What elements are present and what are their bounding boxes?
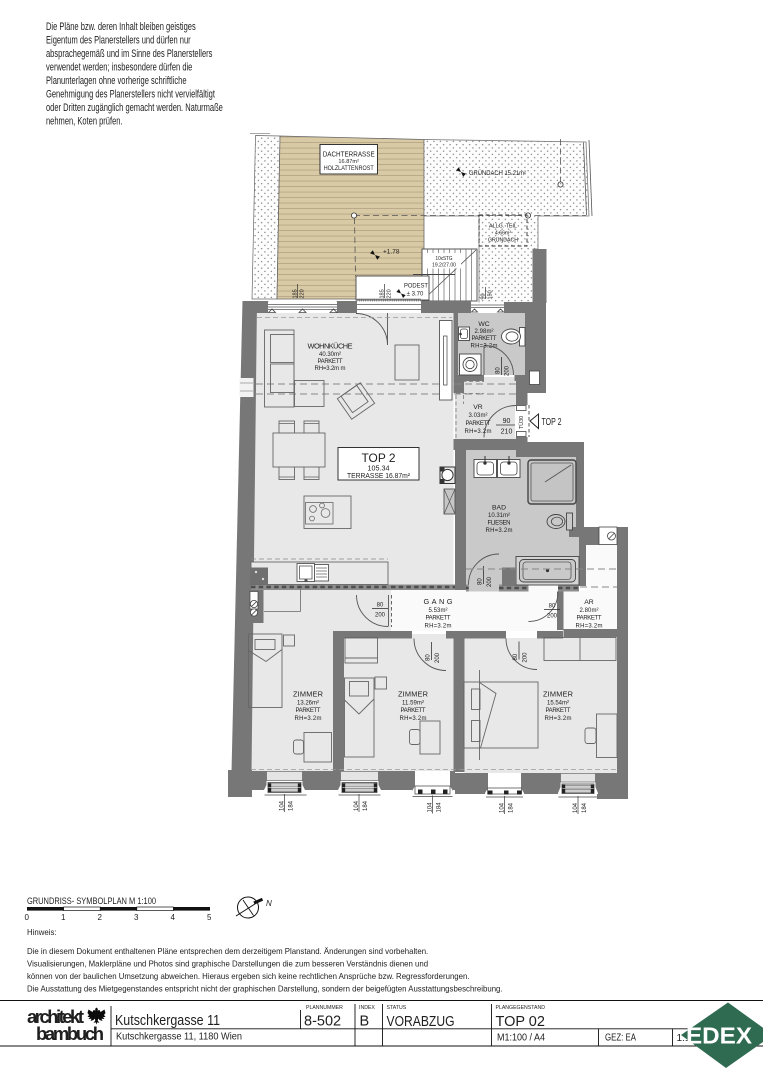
svg-text:15.54m²: 15.54m² bbox=[547, 701, 569, 707]
svg-text:1: 1 bbox=[61, 913, 66, 922]
svg-text:11.59m²: 11.59m² bbox=[402, 701, 424, 707]
svg-text:TOP 02: TOP 02 bbox=[496, 1014, 545, 1030]
svg-text:RH=3.2m: RH=3.2m bbox=[576, 624, 603, 630]
svg-text:AR: AR bbox=[584, 599, 594, 606]
svg-text:+1.78: +1.78 bbox=[383, 249, 400, 256]
svg-text:GRÜNDACH: GRÜNDACH bbox=[488, 237, 518, 244]
svg-text:absprachegemäß und im Sinne de: absprachegemäß und im Sinne des Planerst… bbox=[46, 48, 213, 60]
svg-text:Planunterlagen ohne vorherige: Planunterlagen ohne vorherige schriftlic… bbox=[46, 75, 186, 87]
svg-text:nehmen, Koten prüfen.: nehmen, Koten prüfen. bbox=[46, 115, 123, 127]
svg-text:TOP 2: TOP 2 bbox=[362, 453, 396, 465]
svg-text:40.30m²: 40.30m² bbox=[319, 352, 341, 358]
svg-text:verwendet werden; insbesondere: verwendet werden; insbesondere dürfen di… bbox=[46, 61, 192, 73]
svg-text:bambuch: bambuch bbox=[36, 1023, 104, 1044]
svg-text:RH=3.2m: RH=3.2m bbox=[425, 624, 452, 630]
svg-text:RH=3.2m: RH=3.2m bbox=[471, 344, 498, 350]
svg-text:80: 80 bbox=[426, 654, 432, 661]
svg-text:WC: WC bbox=[478, 321, 489, 328]
svg-text:Visualisierungen, Maklerpläne: Visualisierungen, Maklerpläne und Photos… bbox=[27, 959, 428, 968]
svg-text:STATUS: STATUS bbox=[387, 1005, 407, 1011]
svg-text:EDEX: EDEX bbox=[686, 1023, 753, 1049]
svg-text:Hinweis:: Hinweis: bbox=[27, 928, 57, 937]
svg-text:Die Pläne bzw. deren Inhalt bl: Die Pläne bzw. deren Inhalt bleiben geis… bbox=[46, 21, 196, 33]
svg-text:19.2/27.00: 19.2/27.00 bbox=[432, 263, 456, 269]
svg-text:RH=3.2m: RH=3.2m bbox=[545, 716, 572, 722]
svg-text:M1:100 / A4: M1:100 / A4 bbox=[497, 1033, 545, 1044]
svg-text:10.31m²: 10.31m² bbox=[488, 513, 510, 519]
svg-text:Die in diesem Dokument enthalt: Die in diesem Dokument enthaltenen Pläne… bbox=[27, 946, 428, 957]
svg-text:13.26m²: 13.26m² bbox=[297, 701, 319, 707]
svg-text:PLANNUMMER: PLANNUMMER bbox=[306, 1005, 343, 1011]
svg-text:184: 184 bbox=[509, 802, 515, 813]
svg-text:GANG: GANG bbox=[424, 597, 453, 606]
svg-text:PARKETT: PARKETT bbox=[426, 616, 451, 622]
svg-text:210: 210 bbox=[501, 429, 513, 436]
svg-text:184: 184 bbox=[582, 802, 588, 813]
svg-text:80: 80 bbox=[549, 604, 556, 610]
svg-text:220: 220 bbox=[387, 289, 393, 298]
svg-text:105.34: 105.34 bbox=[368, 466, 390, 473]
svg-text:90: 90 bbox=[503, 418, 511, 425]
svg-text:RH=3.2m: RH=3.2m bbox=[465, 429, 492, 435]
svg-text:Genehmigung des Planerstellers: Genehmigung des Planerstellers nicht ver… bbox=[46, 88, 215, 100]
svg-text:INDEX: INDEX bbox=[359, 1005, 375, 1011]
svg-text:ZIMMER: ZIMMER bbox=[398, 690, 428, 699]
svg-text:200: 200 bbox=[547, 614, 558, 620]
svg-text:PARKETT: PARKETT bbox=[577, 616, 602, 622]
svg-text:200: 200 bbox=[435, 652, 441, 663]
svg-text:FLIESEN: FLIESEN bbox=[488, 521, 511, 527]
svg-text:4: 4 bbox=[171, 913, 176, 922]
svg-text:80: 80 bbox=[478, 578, 484, 585]
svg-text:TERRASSE 16.87m²: TERRASSE 16.87m² bbox=[347, 473, 411, 480]
svg-text:N: N bbox=[266, 899, 272, 908]
svg-text:ALLG. TEIL: ALLG. TEIL bbox=[489, 224, 518, 230]
svg-text:PODEST: PODEST bbox=[404, 283, 428, 290]
svg-text:184: 184 bbox=[437, 802, 443, 813]
svg-text:TÜ30: TÜ30 bbox=[518, 416, 525, 429]
svg-text:PLANGEGENSTAND: PLANGEGENSTAND bbox=[496, 1005, 546, 1011]
svg-text:RH=3.2m: RH=3.2m bbox=[400, 716, 427, 722]
svg-text:BAD: BAD bbox=[492, 505, 506, 512]
svg-text:200: 200 bbox=[505, 365, 511, 376]
svg-text:Kutschkergasse 11: Kutschkergasse 11 bbox=[115, 1012, 220, 1029]
svg-text:PARKETT: PARKETT bbox=[401, 708, 426, 714]
svg-text:PARKETT: PARKETT bbox=[296, 708, 321, 714]
svg-text:RH=3.2m: RH=3.2m bbox=[295, 716, 322, 722]
svg-text:16.87m²: 16.87m² bbox=[338, 159, 359, 165]
svg-text:200: 200 bbox=[487, 576, 493, 587]
svg-text:3.03m²: 3.03m² bbox=[469, 413, 488, 419]
svg-text:200: 200 bbox=[375, 613, 386, 619]
svg-text:± 3.70: ± 3.70 bbox=[407, 292, 424, 298]
svg-text:oder Dritten zugänglich gemach: oder Dritten zugänglich gemacht werden. … bbox=[46, 102, 223, 114]
svg-text:PARKETT: PARKETT bbox=[546, 708, 571, 714]
svg-text:5: 5 bbox=[207, 913, 212, 922]
svg-text:80: 80 bbox=[513, 653, 519, 660]
svg-text:ZIMMER: ZIMMER bbox=[543, 690, 573, 699]
svg-text:ZIMMER: ZIMMER bbox=[293, 690, 323, 699]
svg-text:2: 2 bbox=[98, 913, 103, 922]
svg-text:PARKETT: PARKETT bbox=[466, 421, 491, 427]
svg-text:220: 220 bbox=[300, 289, 306, 298]
svg-text:VR: VR bbox=[473, 404, 483, 411]
svg-text:WOHNKÜCHE: WOHNKÜCHE bbox=[308, 342, 353, 351]
svg-text:5.53m²: 5.53m² bbox=[429, 608, 448, 614]
svg-text:HOLZLATTENROST: HOLZLATTENROST bbox=[324, 166, 374, 172]
svg-text:2.80m²: 2.80m² bbox=[580, 608, 599, 614]
svg-text:8-502: 8-502 bbox=[304, 1014, 341, 1030]
svg-text:GEZ: EA: GEZ: EA bbox=[605, 1033, 636, 1044]
svg-text:GRUNDRISS- SYMBOLPLAN M 1:100: GRUNDRISS- SYMBOLPLAN M 1:100 bbox=[27, 896, 156, 906]
svg-text:PARKETT: PARKETT bbox=[472, 336, 497, 342]
svg-text:184: 184 bbox=[289, 800, 295, 811]
svg-text:184: 184 bbox=[363, 800, 369, 811]
svg-text:PARKETT: PARKETT bbox=[318, 359, 343, 365]
svg-text:TOP 2: TOP 2 bbox=[542, 417, 562, 428]
svg-text:200: 200 bbox=[523, 652, 529, 663]
svg-text:2.98m²: 2.98m² bbox=[475, 329, 494, 335]
svg-text:können von der baulichen Umset: können von der baulichen Umsetzung abwei… bbox=[27, 972, 470, 981]
svg-text:Eigentum des Planerstellers un: Eigentum des Planerstellers und dürfen n… bbox=[46, 34, 191, 46]
svg-text:B: B bbox=[360, 1014, 370, 1030]
svg-text:Kutschkergasse 11, 1180 Wien: Kutschkergasse 11, 1180 Wien bbox=[116, 1032, 242, 1043]
svg-text:RH=3.2m m: RH=3.2m m bbox=[315, 366, 346, 372]
svg-text:Die Ausstattung des Mietgegens: Die Ausstattung des Mietgegenstandes ent… bbox=[27, 984, 503, 993]
svg-text:GRÜNDACH 15.21m²: GRÜNDACH 15.21m² bbox=[469, 169, 526, 177]
svg-text:VORABZUG: VORABZUG bbox=[387, 1014, 455, 1030]
svg-text:0: 0 bbox=[25, 913, 30, 922]
svg-text:80: 80 bbox=[496, 367, 502, 374]
svg-text:4.66m²: 4.66m² bbox=[495, 231, 511, 237]
svg-text:DACHTERRASSE: DACHTERRASSE bbox=[323, 150, 375, 159]
svg-text:10xSTG: 10xSTG bbox=[436, 256, 453, 262]
svg-text:3: 3 bbox=[134, 913, 139, 922]
svg-text:80: 80 bbox=[377, 603, 384, 609]
svg-text:150: 150 bbox=[488, 290, 494, 299]
svg-text:RH=3.2m: RH=3.2m bbox=[486, 528, 513, 534]
